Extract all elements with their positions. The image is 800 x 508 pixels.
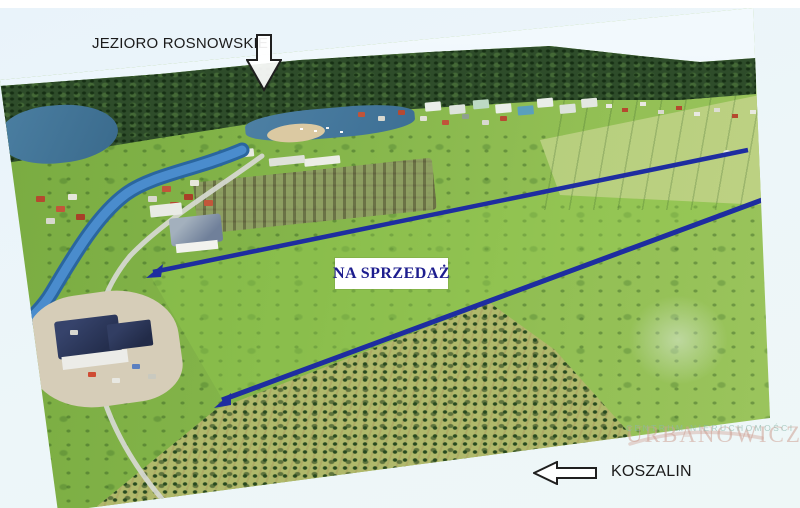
boundary-line-north-end <box>146 264 163 278</box>
construction-equipment <box>88 372 96 377</box>
navy-roof-house-wing <box>107 319 154 350</box>
boundary-line-south <box>222 200 762 400</box>
top-white-strip <box>0 0 800 8</box>
city-label: KOSZALIN <box>611 463 692 481</box>
aerial-listing-image: JEZIORO ROSNOWSKIE NA SPRZEDAŻ KOSZALIN … <box>0 0 800 508</box>
left-arrow-icon <box>533 461 597 485</box>
for-sale-label: NA SPRZEDAŻ <box>333 265 450 283</box>
down-arrow-icon <box>246 34 282 92</box>
down-arrow-shape <box>247 35 281 90</box>
watermark-tagline: CENTRUM NIERUCHOMOŚCI <box>626 423 794 433</box>
left-arrow-shape <box>534 462 596 484</box>
for-sale-badge: NA SPRZEDAŻ <box>335 258 448 289</box>
lake-label: JEZIORO ROSNOWSKIE <box>92 35 268 52</box>
